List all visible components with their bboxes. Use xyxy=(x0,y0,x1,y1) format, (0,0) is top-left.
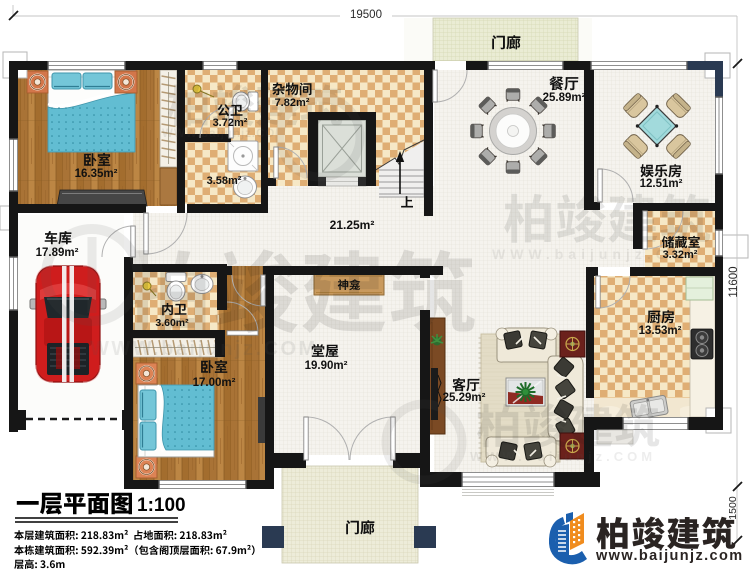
svg-text:25.29m²: 25.29m² xyxy=(443,392,486,404)
svg-text:3.58m²: 3.58m² xyxy=(207,175,242,187)
svg-text:3.72m²: 3.72m² xyxy=(213,117,248,129)
svg-text:21.25m²: 21.25m² xyxy=(330,218,375,232)
svg-text:7.82m²: 7.82m² xyxy=(275,97,310,109)
svg-text:12.51m²: 12.51m² xyxy=(640,178,683,190)
svg-text:www.baijunjz.com: www.baijunjz.com xyxy=(595,548,744,564)
svg-text:1:100: 1:100 xyxy=(137,495,186,516)
svg-text:17.89m²: 17.89m² xyxy=(36,247,79,259)
svg-text:19500: 19500 xyxy=(350,9,382,21)
svg-text:25.89m²: 25.89m² xyxy=(543,92,586,104)
svg-text:11600: 11600 xyxy=(728,266,740,297)
svg-text:13.53m²: 13.53m² xyxy=(639,325,682,337)
svg-text:16.35m²: 16.35m² xyxy=(75,168,118,180)
svg-text:19.90m²: 19.90m² xyxy=(305,360,348,372)
svg-text:WWW.baijunjz.COM: WWW.baijunjz.COM xyxy=(162,128,286,140)
svg-text:1500: 1500 xyxy=(727,496,739,520)
svg-text:WWW.baijunjz.COM: WWW.baijunjz.COM xyxy=(470,449,656,464)
svg-text:3.32m²: 3.32m² xyxy=(663,249,698,261)
svg-text:WWW.baijunjz.COM: WWW.baijunjz.COM xyxy=(90,338,318,360)
svg-text:3.60m²: 3.60m² xyxy=(155,317,189,329)
svg-text:17.00m²: 17.00m² xyxy=(193,377,236,389)
